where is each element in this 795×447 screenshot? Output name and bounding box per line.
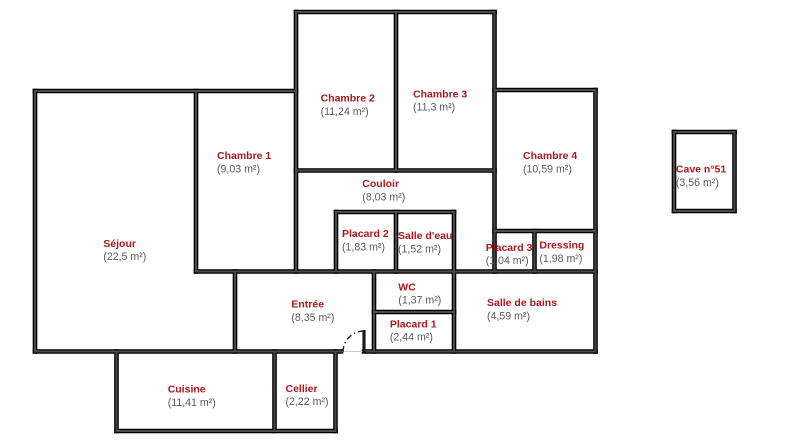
svg-text:(10,59 m²): (10,59 m²): [523, 163, 572, 175]
svg-text:Cave n°51: Cave n°51: [676, 163, 726, 175]
svg-text:(9,03 m²): (9,03 m²): [217, 164, 260, 176]
svg-text:Placard 1: Placard 1: [390, 318, 437, 330]
svg-text:Salle de bains: Salle de bains: [487, 297, 557, 309]
svg-text:(22,5 m²): (22,5 m²): [103, 251, 146, 263]
svg-text:(1,04 m²): (1,04 m²): [486, 255, 529, 267]
svg-text:Cuisine: Cuisine: [168, 384, 206, 396]
svg-text:Placard 3: Placard 3: [486, 242, 533, 254]
svg-text:Salle d'eau: Salle d'eau: [398, 230, 452, 242]
svg-text:Séjour: Séjour: [103, 238, 136, 250]
svg-text:WC: WC: [398, 281, 416, 293]
svg-text:(1,83 m²): (1,83 m²): [342, 241, 385, 253]
svg-text:(2,22 m²): (2,22 m²): [286, 396, 329, 408]
svg-text:Couloir: Couloir: [362, 178, 399, 190]
svg-text:Chambre 3: Chambre 3: [413, 88, 467, 100]
svg-text:(1,98 m²): (1,98 m²): [539, 253, 582, 265]
svg-text:Chambre 2: Chambre 2: [321, 93, 375, 105]
svg-text:(8,35 m²): (8,35 m²): [291, 312, 334, 324]
svg-text:Entrée: Entrée: [291, 299, 324, 311]
svg-text:(8,03 m²): (8,03 m²): [362, 191, 405, 203]
svg-text:(11,3 m²): (11,3 m²): [413, 102, 455, 114]
svg-text:(11,24 m²): (11,24 m²): [321, 106, 369, 118]
svg-text:(11,41 m²): (11,41 m²): [168, 397, 216, 409]
svg-text:Chambre 1: Chambre 1: [217, 150, 271, 162]
svg-text:Cellier: Cellier: [286, 383, 318, 395]
svg-text:(2,44 m²): (2,44 m²): [390, 332, 433, 344]
svg-text:Placard 2: Placard 2: [342, 228, 389, 240]
svg-text:(1,52 m²): (1,52 m²): [398, 243, 441, 255]
svg-text:(1,37 m²): (1,37 m²): [398, 295, 441, 307]
svg-text:(3,56 m²): (3,56 m²): [676, 177, 719, 189]
svg-text:(4,59 m²): (4,59 m²): [487, 311, 530, 323]
svg-text:Chambre 4: Chambre 4: [523, 150, 577, 162]
svg-text:Dressing: Dressing: [539, 240, 584, 252]
